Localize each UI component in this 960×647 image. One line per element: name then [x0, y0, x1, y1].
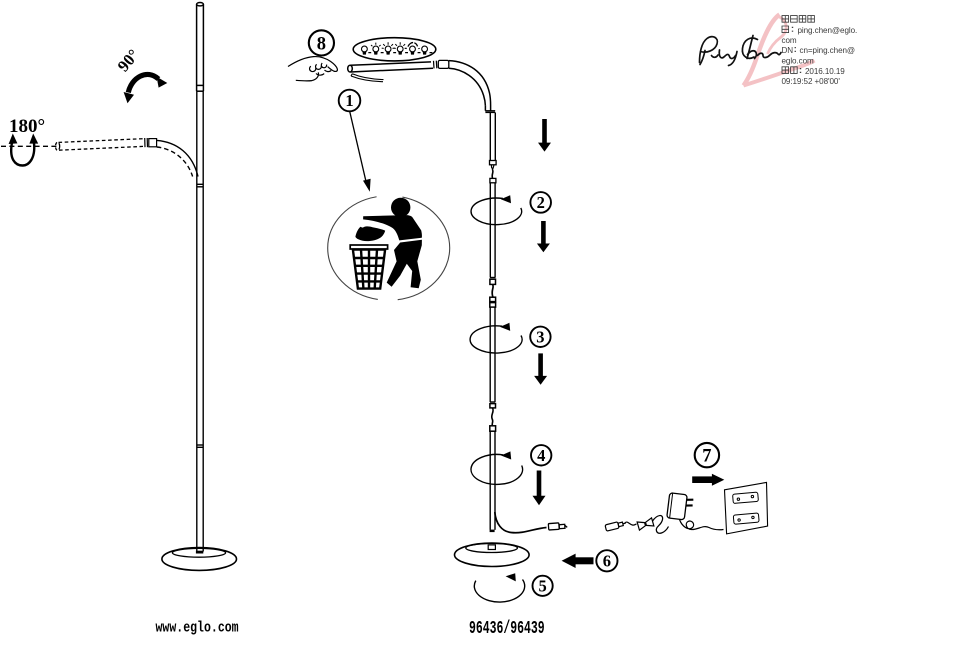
svg-text:cn=ping.chen@: cn=ping.chen@ — [800, 46, 856, 55]
svg-text:90°: 90° — [114, 45, 143, 75]
svg-text:4: 4 — [537, 446, 545, 465]
svg-text:96436/96439: 96436/96439 — [469, 618, 545, 640]
svg-text:09:19:52 +08'00': 09:19:52 +08'00' — [782, 77, 841, 86]
svg-text:5: 5 — [538, 577, 546, 596]
svg-text:6: 6 — [603, 552, 611, 571]
svg-text:DN: DN — [782, 46, 794, 55]
svg-text:www.eglo.com: www.eglo.com — [156, 620, 239, 637]
svg-text:180°: 180° — [9, 116, 45, 137]
svg-text:7: 7 — [702, 447, 711, 467]
svg-text:2: 2 — [537, 193, 545, 212]
svg-text:1: 1 — [345, 91, 353, 110]
svg-text:2016.10.19: 2016.10.19 — [805, 67, 845, 76]
svg-text:eglo.com: eglo.com — [782, 56, 815, 65]
svg-text:8: 8 — [317, 34, 326, 54]
svg-text:3: 3 — [536, 328, 544, 347]
svg-text:com: com — [782, 36, 797, 45]
svg-text:ping.chen@eglo.: ping.chen@eglo. — [798, 26, 858, 35]
